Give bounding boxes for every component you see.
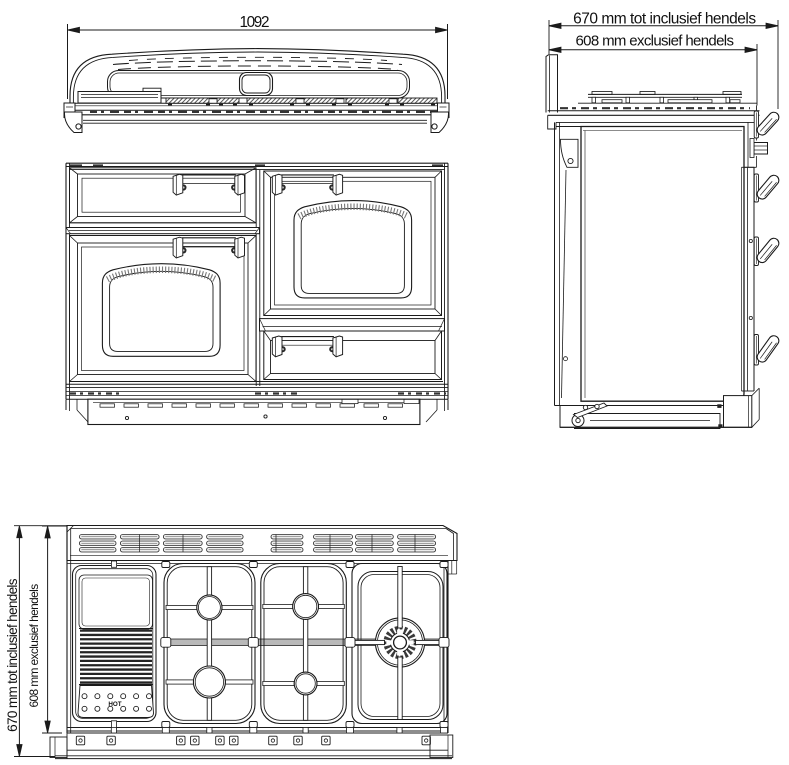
svg-text:670 mm tot inclusief hendels: 670 mm tot inclusief hendels	[5, 578, 20, 732]
svg-text:608 mm exclusief hendels: 608 mm exclusief hendels	[575, 33, 733, 50]
svg-text:HOT: HOT	[108, 701, 121, 708]
svg-text:1092: 1092	[239, 14, 268, 31]
svg-text:608 mm exclusief hendels: 608 mm exclusief hendels	[27, 584, 41, 708]
svg-text:670 mm tot inclusief hendels: 670 mm tot inclusief hendels	[573, 10, 756, 27]
